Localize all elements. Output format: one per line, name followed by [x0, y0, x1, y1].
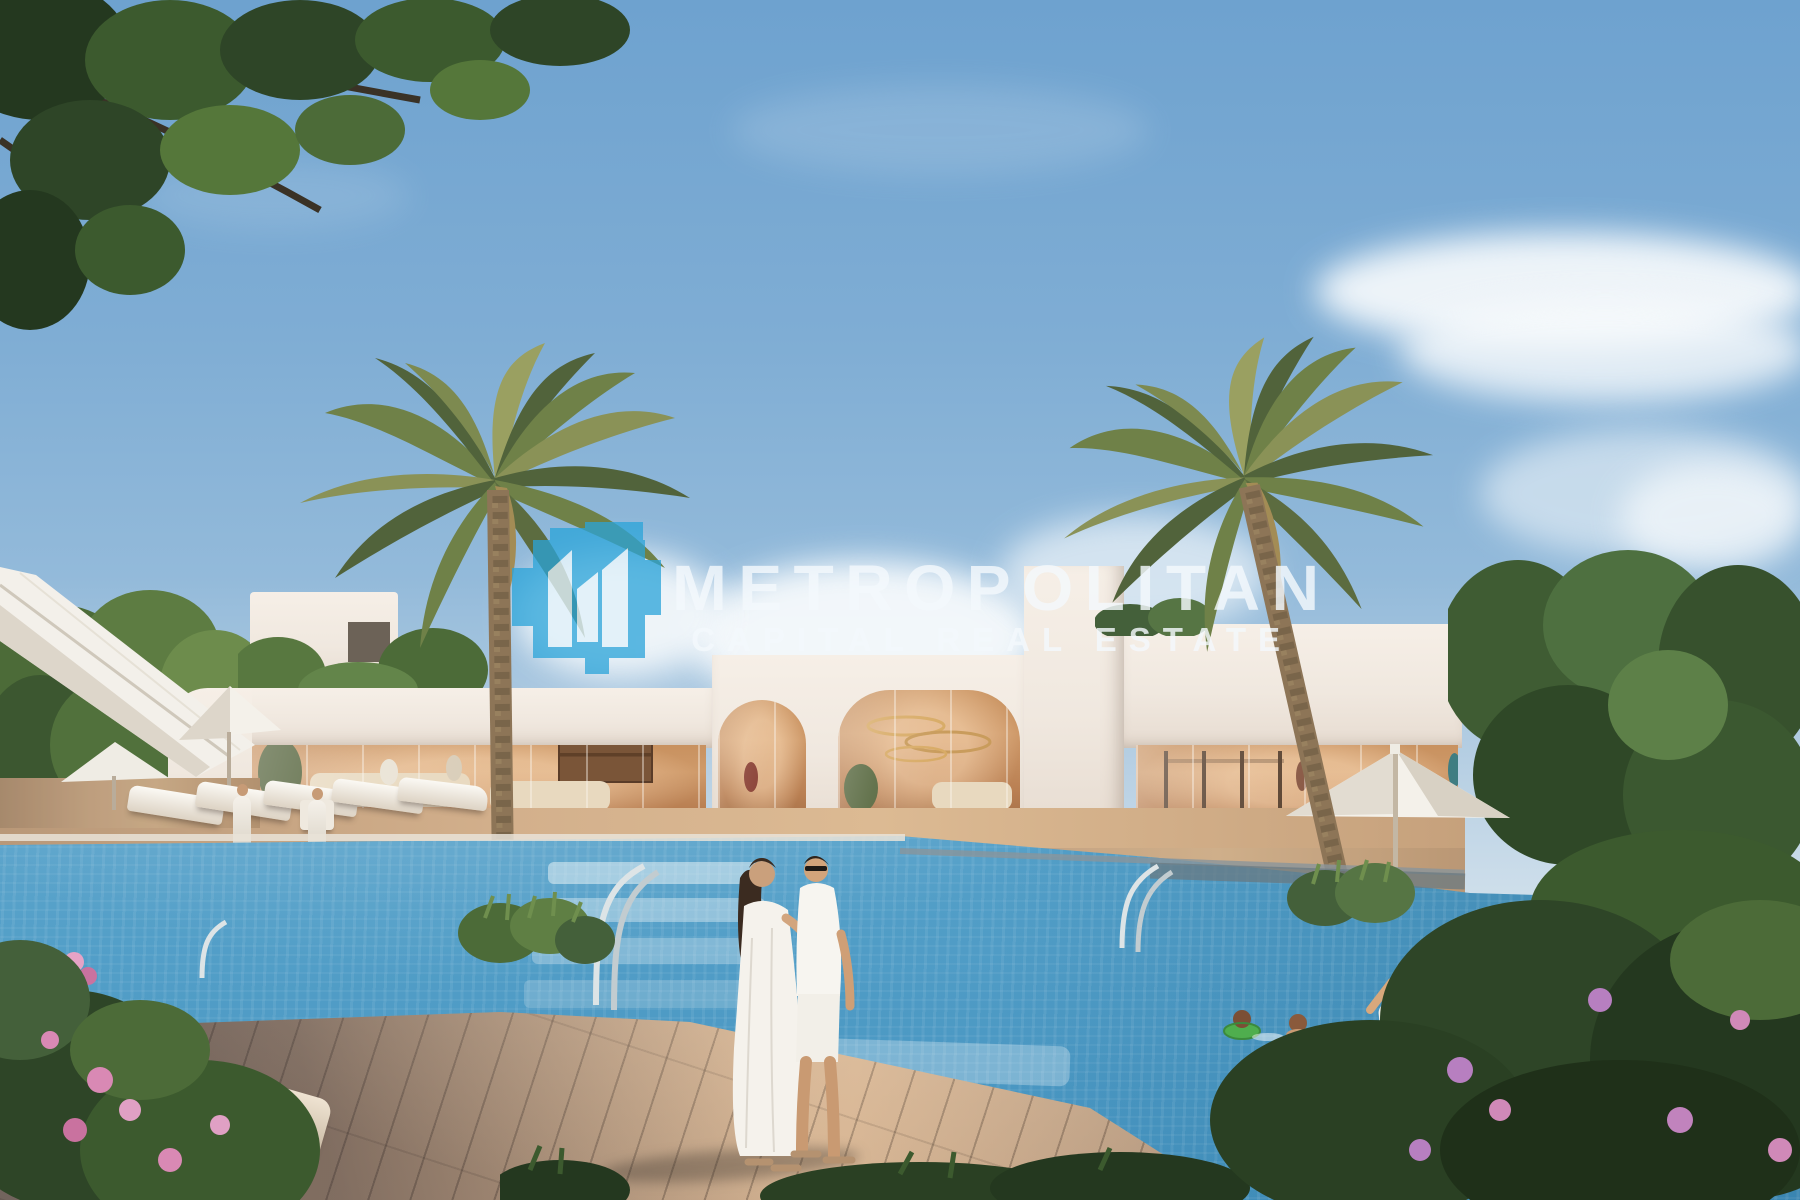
- bottom-left-garden: [0, 910, 380, 1200]
- guest-head: [237, 784, 248, 796]
- metropolitan-buildings-icon: [500, 515, 672, 680]
- pool-corner-planter: [455, 878, 615, 973]
- bottom-right-garden: [1120, 820, 1800, 1200]
- watermark-subtitle: CAPITAL REAL ESTATE: [672, 621, 1292, 659]
- watermark: METROPOLITAN CAPITAL REAL ESTATE: [500, 515, 1310, 680]
- overhanging-branches: [0, 0, 680, 360]
- poolside-clubhouse-rendering: METROPOLITAN CAPITAL REAL ESTATE: [0, 0, 1800, 1200]
- watermark-title: METROPOLITAN: [672, 551, 1330, 625]
